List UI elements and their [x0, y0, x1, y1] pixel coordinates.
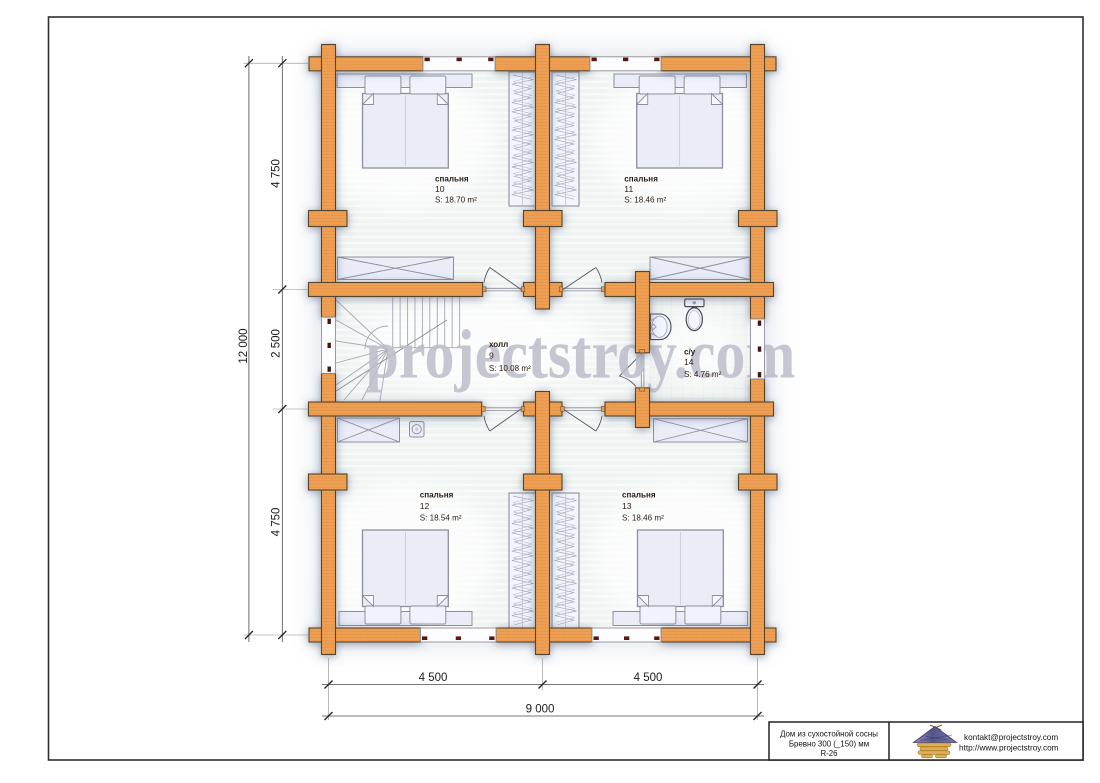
svg-text:R-26: R-26	[820, 749, 838, 758]
svg-text:4 500: 4 500	[634, 672, 663, 684]
svg-text:4 500: 4 500	[419, 672, 448, 684]
svg-text:S: 18.46 m²: S: 18.46 m²	[624, 196, 666, 205]
svg-text:kontakt@projectstroy.com: kontakt@projectstroy.com	[964, 733, 1058, 742]
svg-text:10: 10	[435, 184, 445, 194]
svg-text:спальня: спальня	[420, 491, 454, 500]
svg-text:S: 10.08 m²: S: 10.08 m²	[489, 364, 531, 373]
svg-text:S: 4.76 m²: S: 4.76 m²	[684, 370, 722, 379]
svg-text:S: 18.70 m²: S: 18.70 m²	[435, 196, 477, 205]
svg-text:projectstroy.com: projectstroy.com	[366, 317, 796, 394]
svg-text:13: 13	[622, 501, 632, 511]
svg-text:S: 18.46 m²: S: 18.46 m²	[622, 514, 664, 523]
svg-text:спальня: спальня	[435, 175, 469, 184]
svg-text:12: 12	[420, 501, 430, 511]
svg-text:14: 14	[684, 357, 694, 367]
svg-text:2 500: 2 500	[271, 329, 283, 358]
svg-text:S: 18.54 m²: S: 18.54 m²	[420, 514, 462, 523]
svg-text:12 000: 12 000	[238, 328, 250, 363]
svg-text:с/у: с/у	[684, 348, 696, 357]
svg-text:http://www.projectstroy.com: http://www.projectstroy.com	[959, 743, 1059, 752]
svg-text:4 750: 4 750	[271, 159, 283, 188]
svg-text:11: 11	[624, 184, 633, 194]
svg-text:спальня: спальня	[622, 491, 656, 500]
svg-text:Дом из сухостойной сосны: Дом из сухостойной сосны	[780, 730, 878, 739]
svg-text:4 750: 4 750	[271, 508, 283, 537]
svg-text:9: 9	[489, 351, 494, 361]
svg-text:Бревно 300 (_150) мм: Бревно 300 (_150) мм	[789, 739, 869, 748]
svg-text:9 000: 9 000	[526, 704, 555, 716]
svg-text:спальня: спальня	[624, 175, 658, 184]
svg-text:холл: холл	[489, 340, 508, 349]
